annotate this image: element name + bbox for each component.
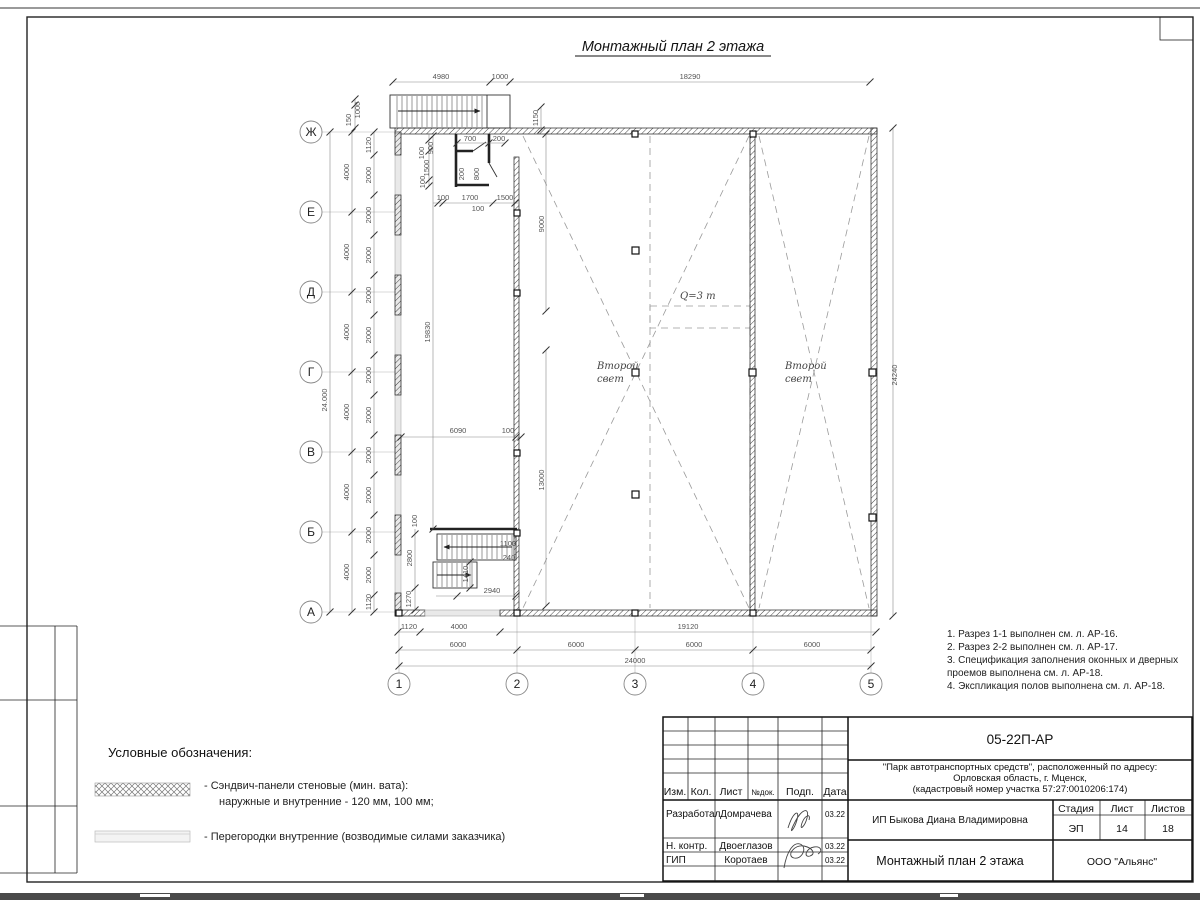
axis-label: В — [307, 445, 315, 459]
floor-plan: 4980 1000 18290 150 1000 1150 4000 4000 … — [300, 72, 899, 695]
dim-label: 18290 — [680, 72, 701, 81]
dim-label: 6000 — [568, 640, 585, 649]
dim-label: 2000 — [364, 367, 373, 384]
tb-name: Домрачева — [720, 809, 772, 820]
dim-label: 1120 — [364, 137, 373, 153]
plan-title: Монтажный план 2 этажа — [582, 39, 764, 55]
dim-label: 6000 — [450, 640, 467, 649]
dim-label: 100 — [437, 193, 450, 202]
crane-outline — [650, 306, 750, 328]
dim-label: 150 — [344, 114, 353, 127]
dim-label: 1270 — [404, 591, 413, 608]
dim-label: 1120 — [401, 622, 417, 631]
dim-label: 2000 — [364, 247, 373, 264]
dim-label: 9000 — [537, 216, 546, 233]
dim-label: 1500 — [497, 193, 514, 202]
dim-label: 2000 — [364, 487, 373, 504]
tb-stage-value: ЭП — [1068, 823, 1083, 835]
tb-date: 03.22 — [825, 856, 846, 865]
legend: Условные обозначения: - Сэндвич-панели с… — [95, 745, 505, 843]
dim-label: 100 — [417, 147, 426, 160]
axis-label: Б — [307, 525, 315, 539]
edge-notch — [940, 894, 958, 897]
dim-label: 4000 — [342, 324, 351, 341]
dim-label: 100 — [472, 204, 485, 213]
dim-label: 200 — [457, 168, 466, 181]
dim-label: 2000 — [364, 287, 373, 304]
axis-label: Г — [308, 365, 315, 379]
tb-date: 03.22 — [825, 810, 846, 819]
edge-notch — [620, 894, 644, 897]
legend-swatch-partition — [95, 831, 190, 842]
tb-col-header: Дата — [823, 786, 846, 798]
tb-sheets-total: 18 — [1162, 823, 1174, 835]
door-leaf — [473, 142, 486, 151]
axis-label: 2 — [514, 677, 521, 691]
dim-label: 4000 — [342, 244, 351, 261]
dim-label: 1100 — [500, 539, 516, 548]
dim-label: 4000 — [342, 164, 351, 181]
title-block: Изм. Кол. Лист №док. Подп. Дата Разработ… — [663, 717, 1192, 881]
legend-item-label: - Перегородки внутренние (возводимые сил… — [204, 831, 505, 843]
dim-label: 2000 — [364, 567, 373, 584]
exterior-stair — [390, 95, 510, 128]
dim-label: 1000 — [492, 72, 509, 81]
tb-sheet-number: 14 — [1116, 823, 1128, 835]
axis-label: 1 — [396, 677, 403, 691]
tb-project-line: (кадастровый номер участка 57:27:0010206… — [913, 784, 1128, 795]
dim-label: 800 — [472, 168, 481, 181]
signature — [784, 844, 821, 868]
hall-labels: Второй свет Второй свет Q=3 т — [596, 291, 827, 385]
legend-swatch-sandwich — [95, 783, 190, 796]
tb-stage-header: Листов — [1151, 803, 1186, 815]
dim-label: 2000 — [364, 447, 373, 464]
dim-label: 900 — [426, 142, 435, 155]
note-line: 4. Экспликация полов выполнена см. л. АР… — [947, 681, 1165, 692]
tb-stage-header: Лист — [1111, 803, 1134, 815]
dim-label: 13000 — [537, 470, 546, 491]
note-line: проемов выполнена см. л. АР-18. — [947, 668, 1103, 679]
sheet-bottom-edge — [0, 893, 1200, 900]
signature — [788, 811, 809, 831]
dim-label: 2940 — [484, 586, 501, 595]
dim-label: 2000 — [364, 167, 373, 184]
note-line: 1. Разрез 1-1 выполнен см. л. АР-16. — [947, 629, 1118, 640]
dim-label: 1150 — [531, 110, 540, 126]
drawing-sheet: Монтажный план 2 этажа — [0, 0, 1200, 900]
window-bottom — [425, 610, 500, 616]
tb-name: Двоеглазов — [719, 841, 772, 852]
dim-label: 4000 — [342, 564, 351, 581]
dim-label: 100 — [502, 426, 515, 435]
second-light-label: свет — [597, 374, 624, 385]
tb-doc-number: 05-22П-АР — [987, 732, 1054, 747]
tb-col-header: Кол. — [691, 786, 712, 798]
frame-corner-box — [1160, 17, 1193, 40]
tb-role: Разработал — [666, 808, 721, 820]
axis-label: Е — [307, 205, 315, 219]
exterior-stair-treads — [397, 96, 482, 127]
tb-client: ИП Быкова Диана Владимировна — [872, 815, 1028, 826]
wall-bottom — [500, 610, 877, 616]
dim-label: 4000 — [451, 622, 468, 631]
axis-bubbles: Ж Е Д Г В Б А 1 2 3 4 5 — [300, 121, 882, 695]
tb-project-line: Орловская область, г. Мценск, — [953, 773, 1087, 784]
legend-item-label: наружные и внутренние - 120 мм, 100 мм; — [219, 796, 434, 808]
dim-label: 100 — [418, 176, 427, 189]
dim-label: 2000 — [364, 407, 373, 424]
axis-label: Д — [307, 285, 315, 299]
dim-label: 2000 — [364, 527, 373, 544]
tb-date: 03.22 — [825, 842, 846, 851]
tb-role: Н. контр. — [666, 841, 707, 852]
dim-label: 4000 — [342, 404, 351, 421]
tb-stage-header: Стадия — [1058, 803, 1094, 815]
dim-label: 1000 — [353, 102, 362, 119]
dim-label: 2000 — [364, 327, 373, 344]
notes: 1. Разрез 1-1 выполнен см. л. АР-16. 2. … — [947, 629, 1178, 692]
axis-label: 5 — [868, 677, 875, 691]
dim-label: 1700 — [462, 193, 479, 202]
dim-label: 200 — [493, 134, 506, 143]
dim-label: 24.000 — [320, 389, 329, 412]
edge-notch — [140, 894, 170, 897]
legend-item-label: - Сэндвич-панели стеновые (мин. вата): — [204, 780, 408, 792]
crane-capacity-label: Q=3 т — [680, 291, 716, 302]
tb-name: Коротаев — [724, 855, 767, 866]
dim-label: 19120 — [678, 622, 699, 631]
second-light-label: свет — [785, 374, 812, 385]
axis-label: А — [307, 605, 315, 619]
tb-col-header: Подп. — [786, 786, 814, 798]
dim-label: 1410 — [461, 566, 470, 583]
tb-sheet-title: Монтажный план 2 этажа — [876, 854, 1023, 868]
dim-label: 1120 — [364, 594, 373, 610]
tb-role: ГИП — [666, 855, 686, 866]
dim-label: 4980 — [433, 72, 450, 81]
tb-col-header: Изм. — [664, 786, 687, 798]
axis-label: 4 — [750, 677, 757, 691]
axis-label: 3 — [632, 677, 639, 691]
dim-label: 4000 — [342, 484, 351, 501]
dim-label: 700 — [464, 134, 477, 143]
axis-label: Ж — [305, 125, 316, 139]
second-light-marks — [523, 136, 869, 608]
tb-col-header: №док. — [751, 788, 774, 797]
dim-label: 6000 — [804, 640, 821, 649]
left-margin-stamp — [0, 626, 77, 873]
note-line: 3. Спецификация заполнения оконных и две… — [947, 654, 1178, 666]
legend-title: Условные обозначения: — [108, 745, 252, 760]
dim-label: 6090 — [450, 426, 467, 435]
dim-label: 240 — [503, 553, 516, 562]
second-light-label: Второй — [784, 361, 827, 372]
dim-label: 2000 — [364, 207, 373, 224]
tb-col-header: Лист — [720, 786, 743, 798]
tb-company: ООО "Альянс" — [1087, 856, 1157, 868]
note-line: 2. Разрез 2-2 выполнен см. л. АР-17. — [947, 642, 1118, 653]
dim-label: 24240 — [890, 365, 899, 386]
dim-label: 6000 — [686, 640, 703, 649]
dim-label: 1500 — [422, 160, 431, 177]
dim-label: 24000 — [625, 656, 646, 665]
second-light-label: Второй — [596, 361, 639, 372]
tb-project-line: "Парк автотранспортных средств", располо… — [883, 762, 1158, 773]
dim-label: 19830 — [423, 322, 432, 343]
dim-label: 100 — [410, 515, 419, 528]
dim-label: 2800 — [405, 550, 414, 567]
door-leaf — [489, 163, 497, 177]
